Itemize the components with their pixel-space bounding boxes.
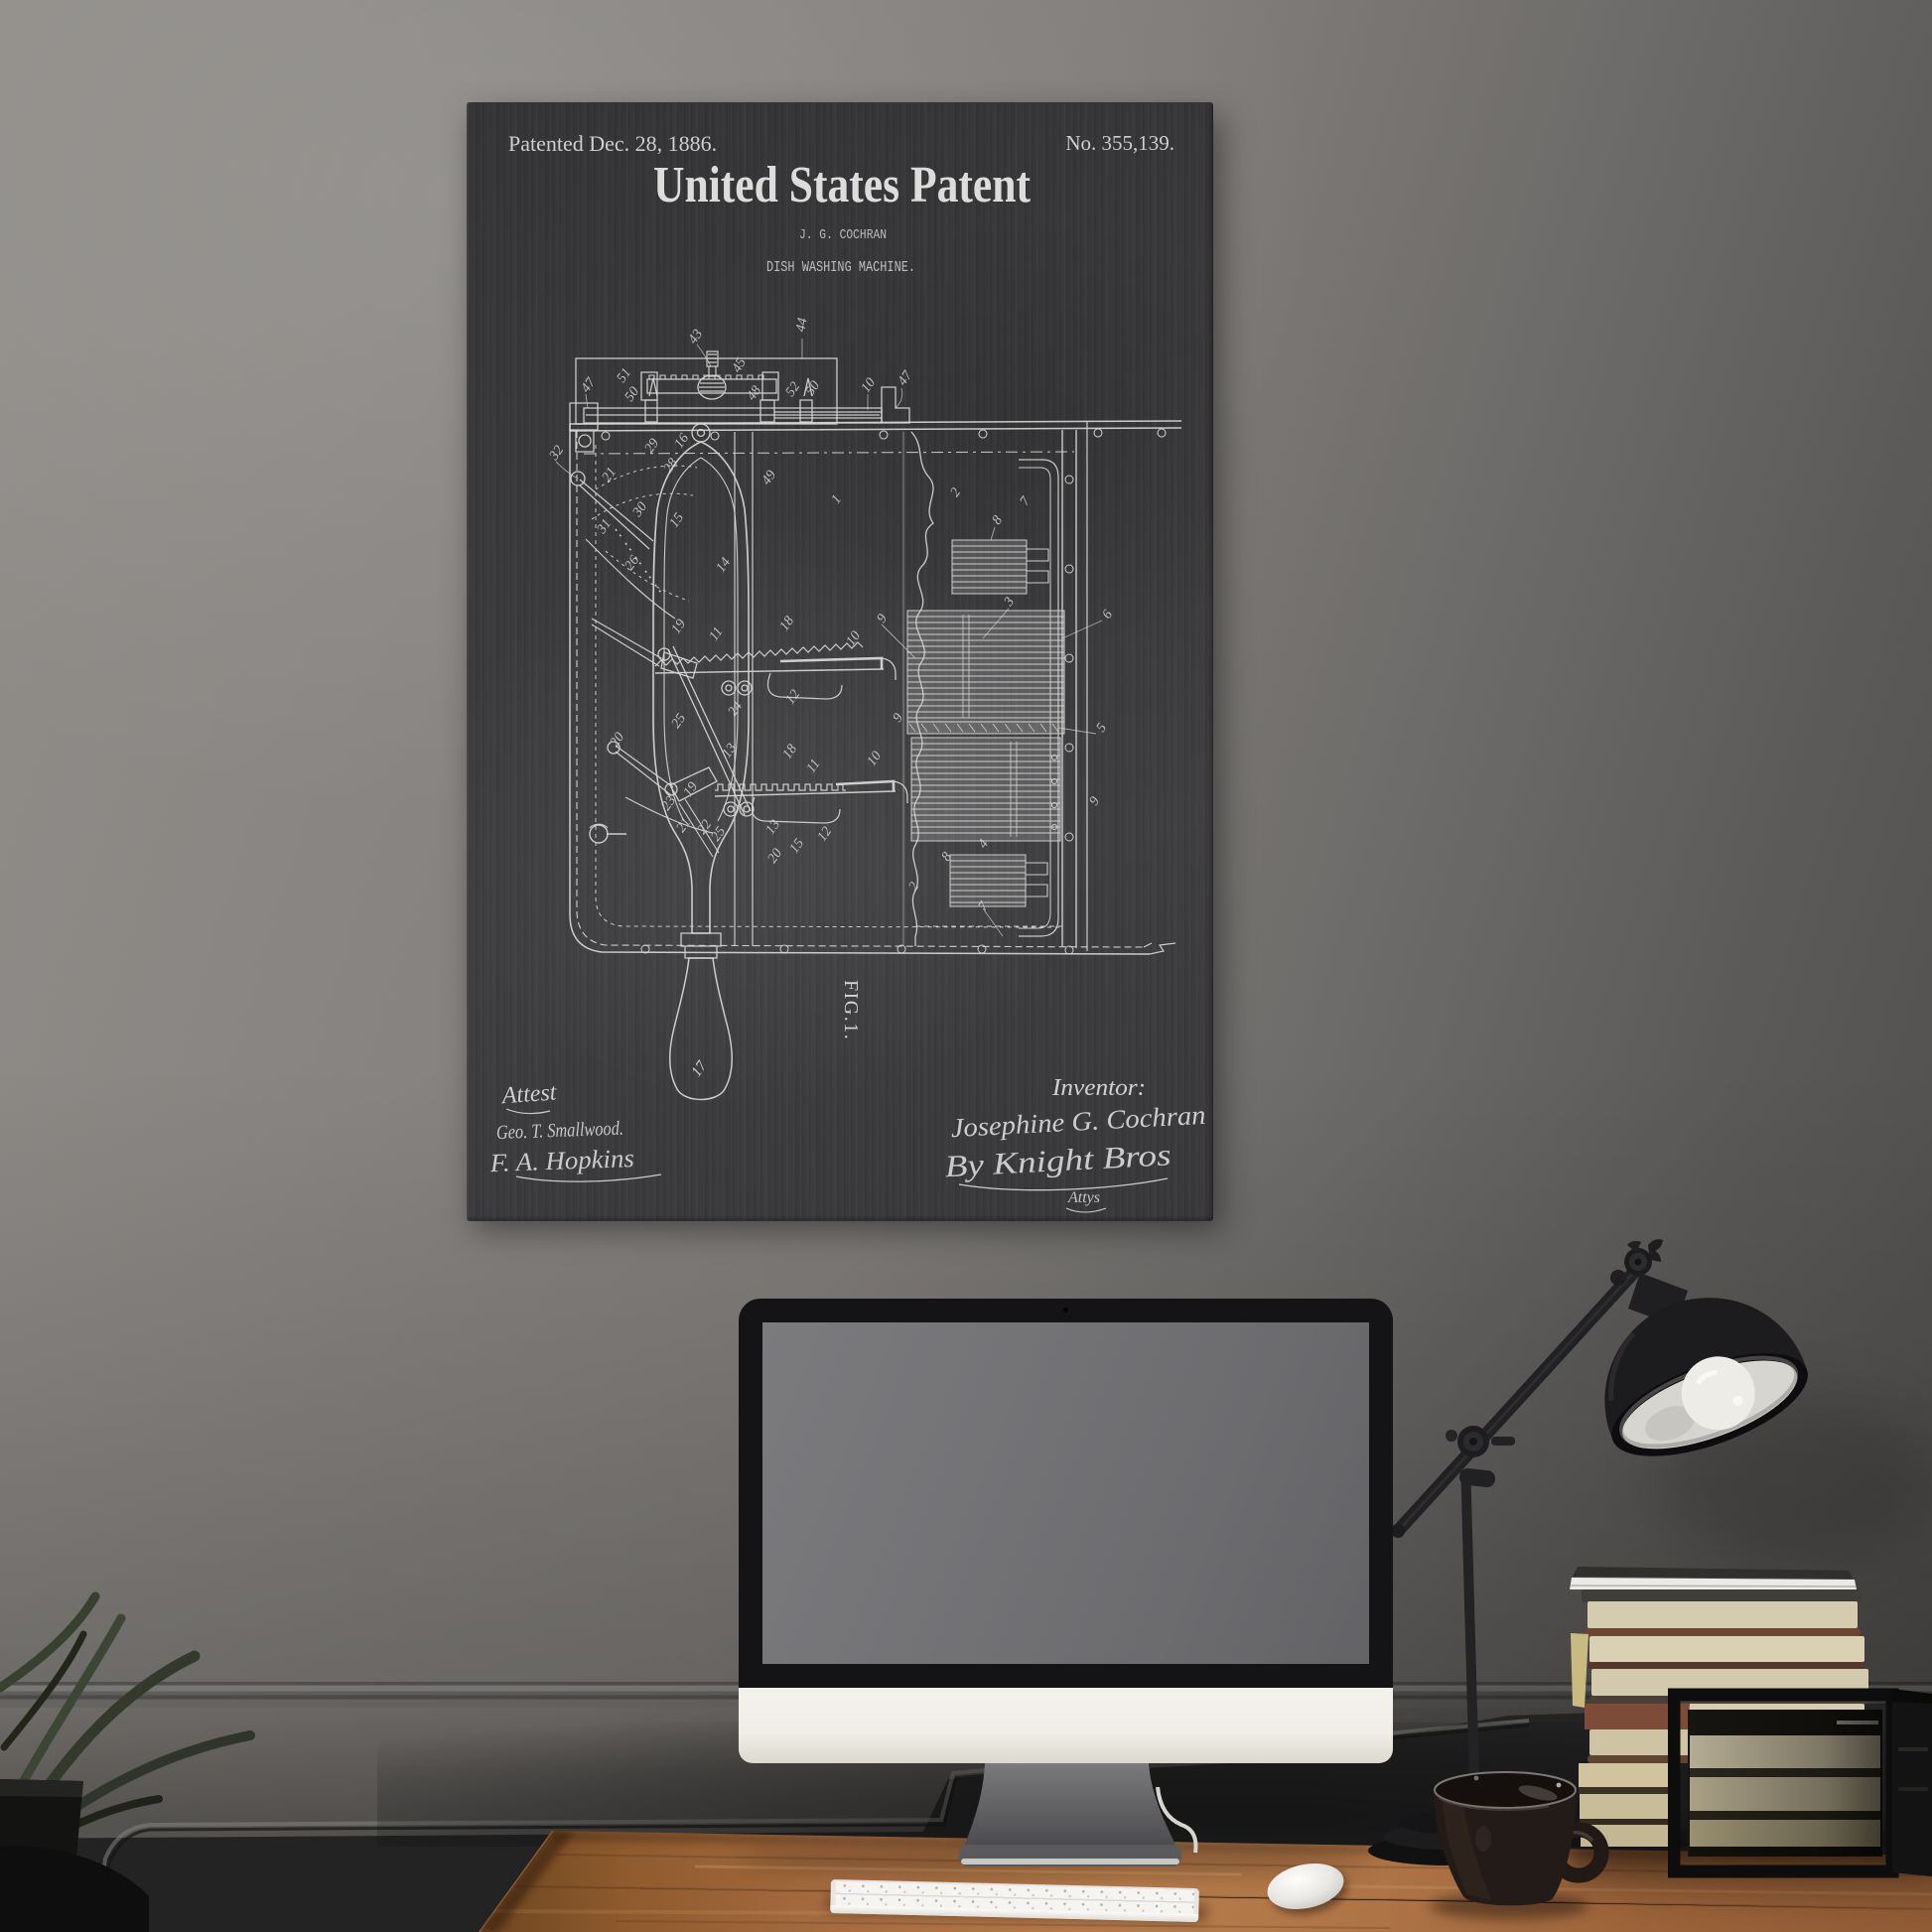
- svg-text:49: 49: [759, 468, 779, 487]
- svg-text:26: 26: [622, 553, 642, 573]
- svg-text:3: 3: [1001, 595, 1018, 610]
- svg-text:18: 18: [777, 614, 797, 633]
- svg-text:6: 6: [1100, 608, 1116, 621]
- svg-text:24: 24: [726, 699, 746, 719]
- svg-text:9: 9: [1087, 794, 1103, 808]
- svg-text:DISH WASHING MACHINE.: DISH WASHING MACHINE.: [766, 259, 915, 276]
- svg-text:8: 8: [990, 513, 1006, 527]
- svg-text:F. A. Hopkins: F. A. Hopkins: [488, 1144, 634, 1177]
- svg-text:12: 12: [783, 687, 803, 707]
- svg-text:52: 52: [783, 379, 803, 399]
- svg-text:17: 17: [689, 1057, 712, 1080]
- svg-text:21: 21: [674, 815, 694, 835]
- svg-text:31: 31: [594, 516, 615, 537]
- svg-text:20: 20: [765, 846, 785, 866]
- svg-text:7: 7: [1018, 493, 1035, 508]
- svg-text:2: 2: [906, 880, 922, 894]
- svg-text:32: 32: [546, 443, 567, 464]
- svg-text:14: 14: [714, 555, 734, 575]
- svg-text:25: 25: [669, 711, 689, 731]
- svg-text:15: 15: [667, 510, 687, 530]
- svg-text:13: 13: [763, 817, 783, 837]
- svg-text:51: 51: [615, 365, 634, 385]
- svg-text:30: 30: [629, 499, 650, 520]
- svg-text:44: 44: [793, 317, 810, 333]
- svg-text:15: 15: [787, 836, 807, 856]
- svg-text:50: 50: [803, 378, 823, 398]
- svg-text:43: 43: [686, 327, 706, 346]
- svg-text:Patented Dec. 28, 1886.: Patented Dec. 28, 1886.: [508, 131, 717, 156]
- svg-text:20: 20: [608, 730, 627, 750]
- svg-text:Attest: Attest: [499, 1079, 559, 1109]
- svg-text:21: 21: [600, 465, 620, 484]
- svg-text:10: 10: [859, 375, 879, 395]
- svg-text:47: 47: [896, 368, 916, 389]
- svg-text:5: 5: [1094, 721, 1110, 735]
- svg-text:No. 355,139.: No. 355,139.: [1065, 131, 1174, 155]
- svg-text:19: 19: [669, 617, 689, 636]
- svg-text:2: 2: [948, 485, 964, 499]
- svg-text:J. G. COCHRAN: J. G. COCHRAN: [799, 227, 887, 243]
- svg-text:12: 12: [815, 824, 835, 844]
- svg-text:47: 47: [579, 375, 600, 396]
- svg-text:11: 11: [804, 757, 824, 775]
- svg-text:United States Patent: United States Patent: [653, 157, 1032, 213]
- svg-text:9: 9: [875, 612, 891, 625]
- svg-text:10: 10: [865, 749, 885, 768]
- svg-text:Attys: Attys: [1067, 1189, 1100, 1206]
- svg-text:By Knight Bros: By Knight Bros: [944, 1137, 1173, 1183]
- svg-text:Inventor:: Inventor:: [1051, 1075, 1146, 1101]
- svg-text:19: 19: [681, 779, 701, 799]
- svg-text:50: 50: [622, 384, 642, 404]
- svg-text:11: 11: [707, 624, 727, 643]
- svg-text:FIG.1.: FIG.1.: [840, 980, 862, 1040]
- svg-text:18: 18: [780, 742, 800, 761]
- svg-text:Geo. T. Smallwood.: Geo. T. Smallwood.: [496, 1118, 624, 1144]
- svg-text:9: 9: [891, 711, 906, 725]
- svg-text:1: 1: [829, 492, 845, 506]
